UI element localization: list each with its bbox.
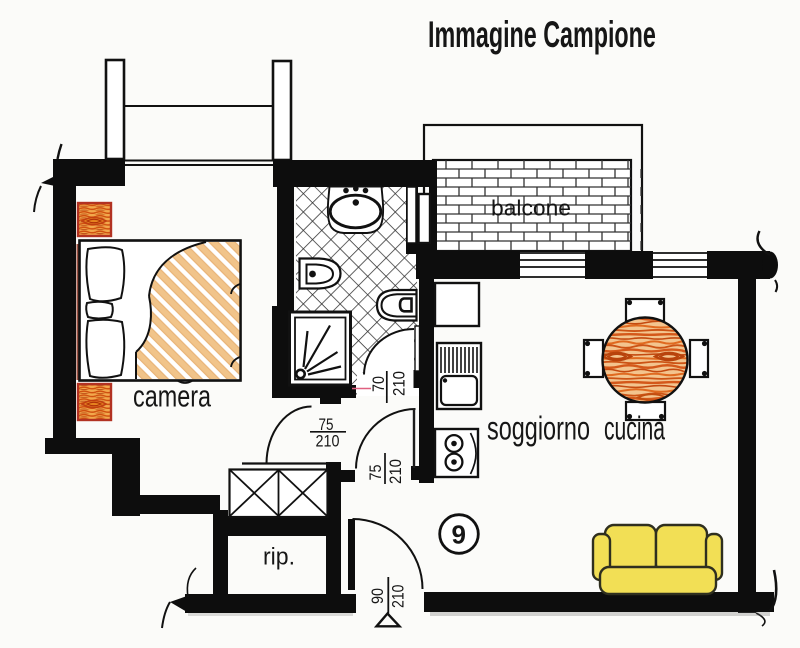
svg-text:70: 70 <box>369 376 388 392</box>
svg-text:Immagine Campione: Immagine Campione <box>428 14 656 56</box>
svg-text:210: 210 <box>390 371 409 396</box>
svg-text:9: 9 <box>452 520 466 550</box>
svg-text:210: 210 <box>386 459 405 484</box>
svg-text:soggiorno: soggiorno <box>487 410 590 447</box>
svg-text:75: 75 <box>366 465 385 481</box>
svg-text:camera: camera <box>133 379 212 414</box>
svg-text:210: 210 <box>316 433 340 451</box>
svg-text:cucina: cucina <box>604 410 665 447</box>
svg-text:90: 90 <box>368 588 387 604</box>
svg-text:rip.: rip. <box>263 544 295 571</box>
svg-text:balcone: balcone <box>491 196 571 221</box>
svg-text:210: 210 <box>389 585 408 609</box>
